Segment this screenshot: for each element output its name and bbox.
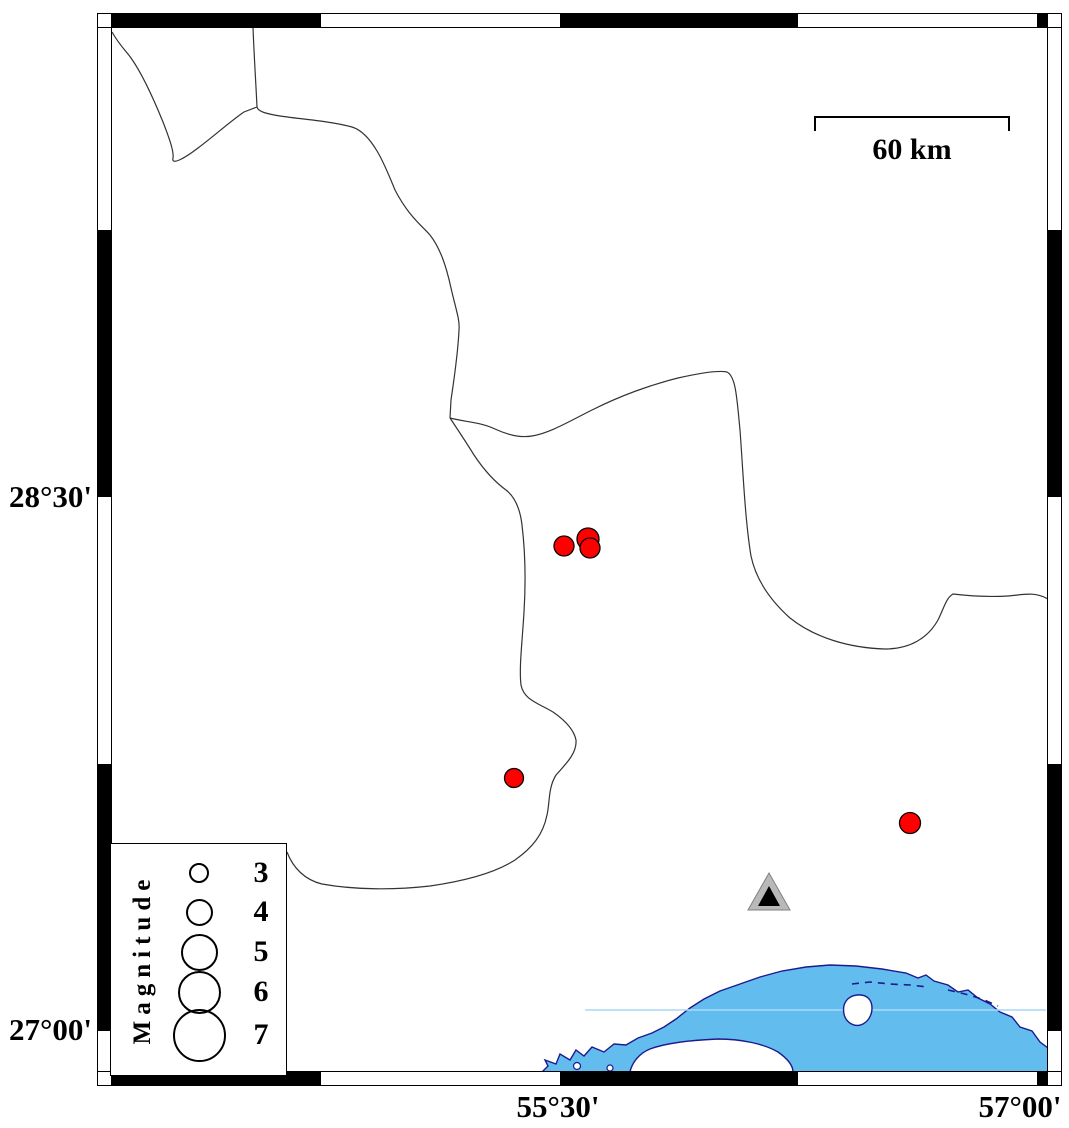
map-figure: 28°30' 27°00' 55°30' 57°00' 60 km Magnit… bbox=[0, 0, 1069, 1128]
magnitude-legend: Magnitude 34567 bbox=[110, 843, 287, 1076]
boundary-nw bbox=[112, 32, 257, 161]
earthquake-marker bbox=[900, 813, 921, 834]
frame-segment bbox=[1048, 764, 1062, 1031]
legend-magnitude-label: 3 bbox=[239, 856, 283, 890]
boundary-south bbox=[287, 418, 576, 889]
legend-magnitude-label: 4 bbox=[239, 895, 283, 929]
island-round bbox=[844, 995, 872, 1026]
lon-label-left: 55°30' bbox=[478, 1090, 638, 1124]
scalebar-label: 60 km bbox=[812, 133, 1012, 167]
scalebar-bracket bbox=[815, 117, 1009, 131]
legend-magnitude-label: 6 bbox=[239, 975, 283, 1009]
frame-segment bbox=[97, 230, 111, 497]
legend-magnitude-circle bbox=[181, 934, 218, 971]
frame-segment bbox=[560, 13, 798, 27]
frame-segment bbox=[560, 1072, 798, 1086]
frame-segment bbox=[1048, 230, 1062, 497]
sea-polygon bbox=[542, 965, 1048, 1072]
lat-label-top: 28°30' bbox=[0, 480, 92, 514]
water-layer bbox=[542, 965, 1048, 1072]
frame-corner bbox=[98, 14, 112, 28]
legend-magnitude-label: 5 bbox=[239, 935, 283, 969]
boundary-main bbox=[253, 27, 459, 418]
earthquake-layer bbox=[505, 528, 921, 834]
islet bbox=[607, 1065, 613, 1071]
legend-title: Magnitude bbox=[129, 849, 159, 1069]
legend-magnitude-circle bbox=[173, 1009, 226, 1062]
frame-segment bbox=[1037, 13, 1048, 27]
earthquake-marker bbox=[505, 769, 524, 788]
frame-segment bbox=[111, 13, 321, 27]
legend-magnitude-circle bbox=[186, 899, 213, 926]
frame-segment bbox=[1037, 1072, 1048, 1086]
station-layer bbox=[748, 873, 790, 910]
frame-corner bbox=[1048, 1072, 1062, 1086]
earthquake-marker bbox=[554, 536, 574, 556]
earthquake-marker bbox=[580, 538, 600, 558]
legend-magnitude-label: 7 bbox=[239, 1018, 283, 1052]
islet bbox=[574, 1063, 581, 1070]
legend-magnitude-circle bbox=[178, 971, 221, 1014]
lon-label-right: 57°00' bbox=[940, 1090, 1069, 1124]
frame-segment bbox=[97, 764, 111, 1031]
lat-label-bottom: 27°00' bbox=[0, 1013, 92, 1047]
boundary-east bbox=[450, 371, 1048, 649]
legend-magnitude-circle bbox=[189, 863, 209, 883]
frame-corner bbox=[1048, 14, 1062, 28]
